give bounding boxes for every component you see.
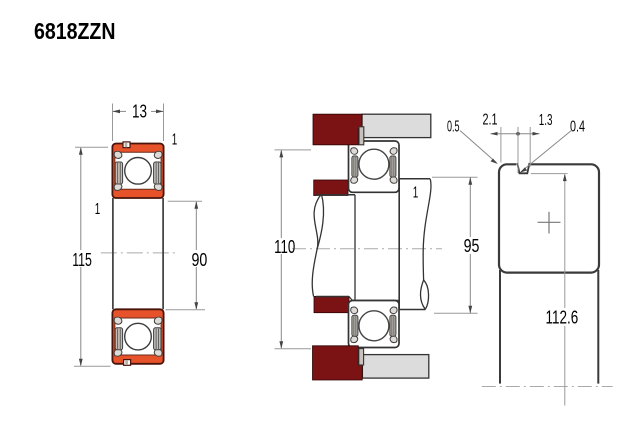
svg-text:1: 1 xyxy=(95,201,101,218)
svg-text:2.1: 2.1 xyxy=(483,111,498,128)
svg-text:112.6: 112.6 xyxy=(546,308,579,328)
svg-text:6818ZZN: 6818ZZN xyxy=(34,18,116,44)
svg-text:115: 115 xyxy=(72,250,92,270)
svg-text:1: 1 xyxy=(172,132,178,149)
svg-text:90: 90 xyxy=(192,250,208,270)
svg-text:13: 13 xyxy=(132,102,147,122)
svg-text:110: 110 xyxy=(274,237,295,257)
svg-text:1: 1 xyxy=(413,184,419,201)
svg-text:1.3: 1.3 xyxy=(539,112,553,129)
svg-text:95: 95 xyxy=(464,236,480,256)
svg-text:0.4: 0.4 xyxy=(570,119,585,136)
svg-text:0.5: 0.5 xyxy=(447,119,460,136)
